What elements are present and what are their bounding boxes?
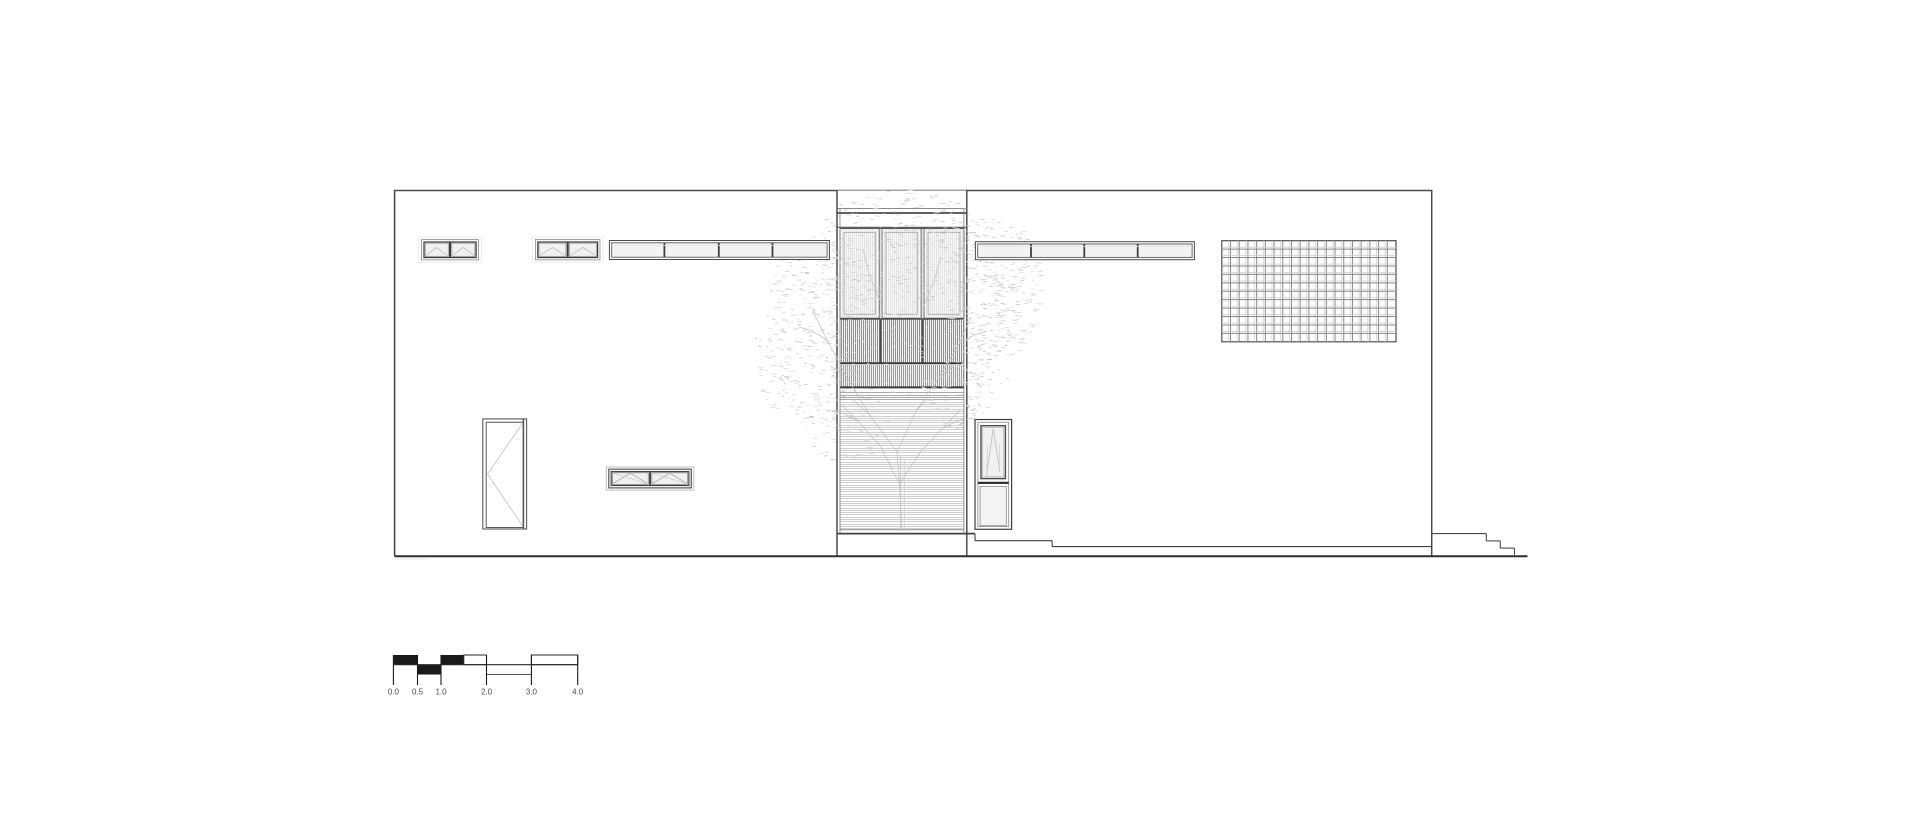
svg-text:0.5: 0.5 [412,688,424,697]
svg-text:4.0: 4.0 [572,688,584,697]
svg-text:3.0: 3.0 [526,688,538,697]
svg-text:2.0: 2.0 [481,688,493,697]
svg-text:0.0: 0.0 [388,688,400,697]
svg-text:1.0: 1.0 [435,688,447,697]
